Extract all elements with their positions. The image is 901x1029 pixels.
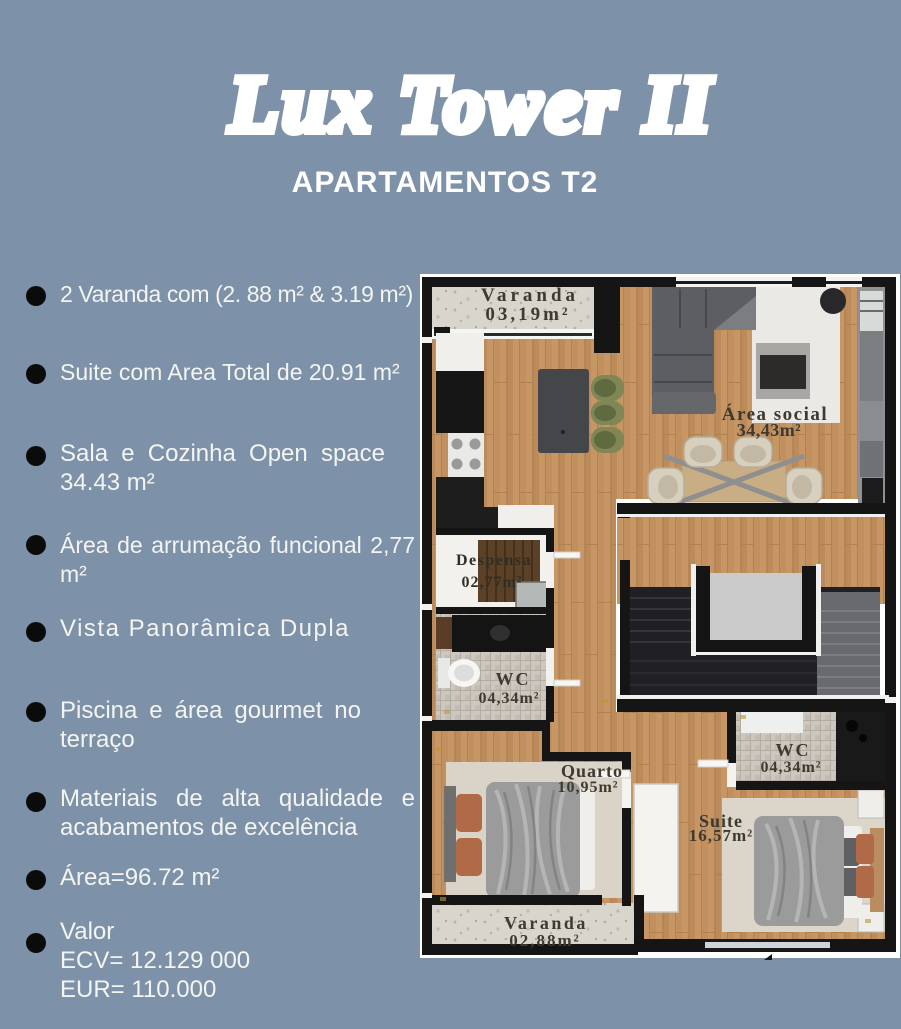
svg-text:10,95m²: 10,95m² <box>557 779 618 796</box>
svg-text:03,19m²: 03,19m² <box>485 304 570 325</box>
svg-text:WC: WC <box>776 740 811 760</box>
svg-text:WC: WC <box>496 669 531 689</box>
svg-text:Varanda: Varanda <box>504 913 588 933</box>
svg-text:04,34m²: 04,34m² <box>478 690 539 707</box>
svg-text:16,57m²: 16,57m² <box>689 826 754 845</box>
svg-text:04,34m²: 04,34m² <box>760 759 821 776</box>
svg-text:34,43m²: 34,43m² <box>737 420 801 440</box>
svg-text:Varanda: Varanda <box>481 285 579 306</box>
svg-text:Despensa: Despensa <box>456 552 532 569</box>
svg-text:02,88m²: 02,88m² <box>509 931 581 950</box>
svg-text:Quarto: Quarto <box>561 761 623 781</box>
svg-text:02,77m²: 02,77m² <box>461 574 522 591</box>
